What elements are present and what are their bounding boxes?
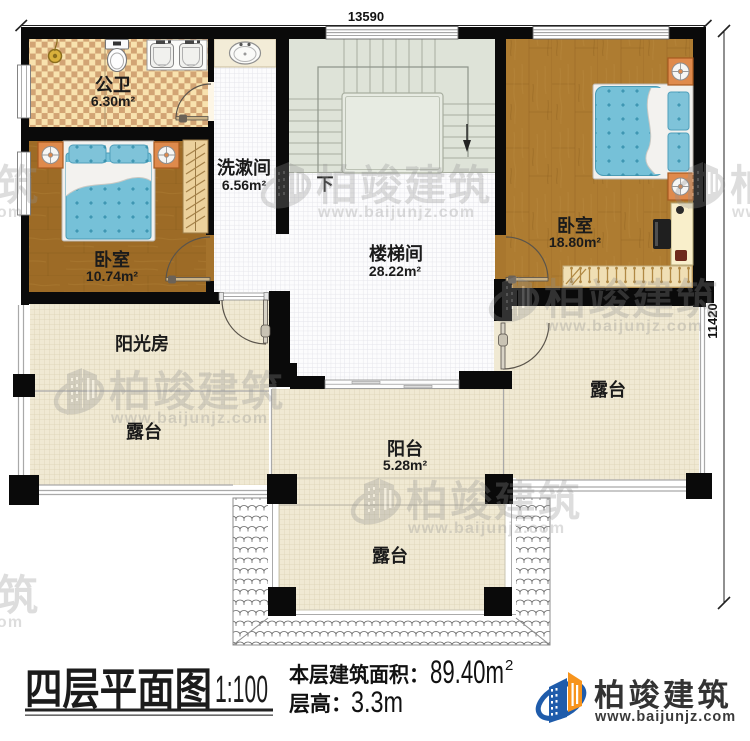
svg-text:露台: 露台 <box>126 421 162 442</box>
svg-text:89.40m: 89.40m <box>430 654 504 690</box>
svg-text:阳光房: 阳光房 <box>115 333 169 354</box>
svg-text:1:100: 1:100 <box>215 669 268 711</box>
svg-text:露台: 露台 <box>372 545 408 566</box>
svg-text:28.22m²: 28.22m² <box>369 263 421 279</box>
svg-text:公卫: 公卫 <box>95 75 131 95</box>
svg-text:露台: 露台 <box>590 379 626 400</box>
svg-text:2: 2 <box>505 657 513 674</box>
svg-text:13590: 13590 <box>348 9 384 24</box>
svg-text:卧室: 卧室 <box>557 215 593 236</box>
svg-text:洗漱间: 洗漱间 <box>217 157 271 178</box>
svg-text:四层平面图: 四层平面图 <box>25 665 212 714</box>
svg-text:6.56m²: 6.56m² <box>222 177 267 193</box>
svg-text:柏竣建筑: 柏竣建筑 <box>594 678 732 713</box>
svg-text:层高：: 层高： <box>289 692 352 716</box>
svg-text:卧室: 卧室 <box>94 249 130 270</box>
svg-text:10.74m²: 10.74m² <box>86 268 138 284</box>
svg-text:楼梯间: 楼梯间 <box>369 243 423 264</box>
svg-text:www.baijunjz.com: www.baijunjz.com <box>594 709 736 725</box>
svg-text:本层建筑面积：: 本层建筑面积： <box>289 663 429 687</box>
svg-text:3.3m: 3.3m <box>351 686 403 719</box>
svg-text:6.30m²: 6.30m² <box>91 93 136 109</box>
svg-text:5.28m²: 5.28m² <box>383 457 428 473</box>
svg-text:阳台: 阳台 <box>387 438 423 459</box>
svg-text:18.80m²: 18.80m² <box>549 234 601 250</box>
